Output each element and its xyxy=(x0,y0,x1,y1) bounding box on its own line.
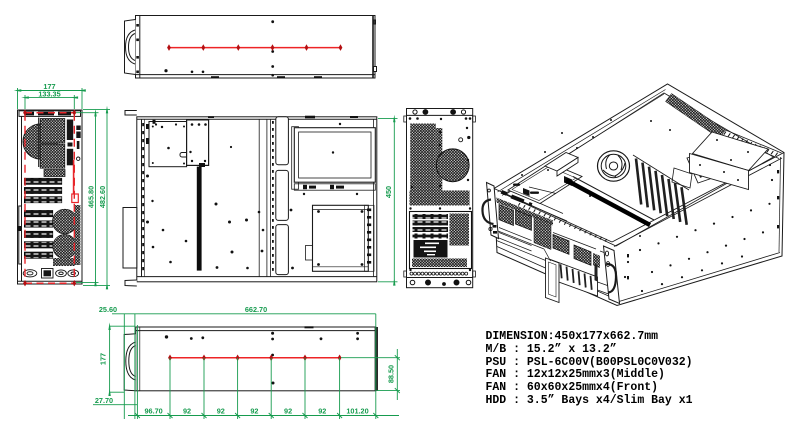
svg-text:92: 92 xyxy=(250,407,258,416)
svg-text:177: 177 xyxy=(99,353,108,365)
svg-text:92: 92 xyxy=(183,407,191,416)
svg-text:465.80: 465.80 xyxy=(87,186,96,208)
svg-text:450: 450 xyxy=(384,186,393,198)
svg-text:101.20: 101.20 xyxy=(346,407,368,416)
svg-text:92: 92 xyxy=(284,407,292,416)
svg-text:133.35: 133.35 xyxy=(38,89,60,98)
svg-text:482.60: 482.60 xyxy=(98,186,107,208)
svg-text:27.70: 27.70 xyxy=(95,396,113,405)
svg-text:662.70: 662.70 xyxy=(245,305,267,314)
svg-text:92: 92 xyxy=(318,407,326,416)
svg-text:25.60: 25.60 xyxy=(99,305,117,314)
svg-text:96.70: 96.70 xyxy=(144,407,162,416)
svg-text:88.50: 88.50 xyxy=(386,365,395,383)
svg-text:92: 92 xyxy=(217,407,225,416)
